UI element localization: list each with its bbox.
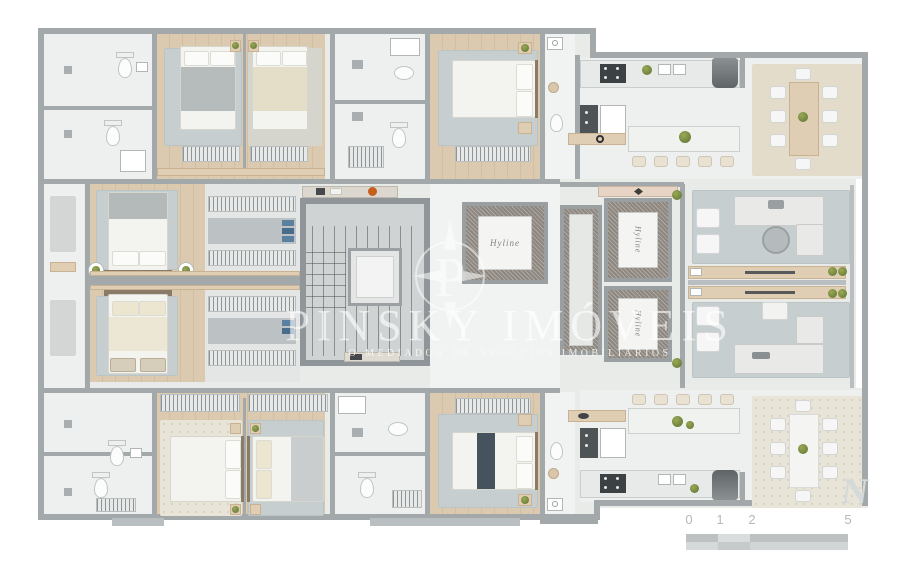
- dining-chair: [795, 158, 811, 170]
- toilet: [388, 422, 408, 436]
- wall-v1-bottom: [152, 392, 157, 514]
- laundry-basin: [548, 82, 559, 93]
- toilet: [550, 114, 563, 132]
- plant: [679, 131, 691, 143]
- planter: [838, 267, 847, 276]
- elevator-cab: Hyline: [618, 212, 658, 268]
- decor-item: [578, 413, 589, 419]
- floorplan-render: Hyline Hyline Hyline: [0, 0, 900, 576]
- bar-stool: [632, 156, 646, 167]
- nightstand: [250, 504, 261, 515]
- shower-tray: [338, 396, 366, 414]
- scale-segment: [686, 542, 718, 550]
- planter: [828, 289, 837, 298]
- floor-drain: [64, 420, 72, 428]
- deck-slot: [745, 271, 795, 274]
- toilet-tank: [92, 472, 110, 478]
- toilet-tank: [108, 440, 126, 446]
- dining-chair: [822, 466, 838, 479]
- refrigerator: [600, 428, 626, 458]
- headboard: [535, 432, 538, 490]
- bar-stool: [676, 394, 690, 405]
- sink-basin: [658, 64, 671, 75]
- deck-divider: [688, 280, 846, 285]
- oven-tower: [580, 428, 598, 458]
- closet-rail: [248, 394, 328, 412]
- armchair: [696, 332, 720, 352]
- wall-v3-top: [425, 32, 430, 179]
- sofa: [734, 344, 824, 374]
- washer-drum: [552, 40, 558, 46]
- wall-living-right: [850, 185, 854, 388]
- stub-balcony-2: [370, 518, 520, 526]
- closet-rail: [160, 394, 240, 412]
- dining-chair: [822, 442, 838, 455]
- nightstand: [518, 414, 532, 426]
- plant: [252, 425, 259, 432]
- dining-chair: [795, 68, 811, 80]
- toilet: [360, 478, 374, 498]
- dining-chair: [770, 86, 786, 99]
- plant: [521, 496, 529, 504]
- elevator-script-label: Hyline: [490, 238, 520, 248]
- elevator-script-label: Hyline: [634, 310, 643, 337]
- wall-bottom-band: [44, 388, 560, 393]
- cooktop: [600, 474, 626, 493]
- sink-basin: [673, 64, 686, 75]
- bath-inner-wall-tm: [335, 100, 425, 104]
- bench-radiator: [455, 398, 531, 414]
- coffee-table: [762, 226, 790, 254]
- bar-stool: [654, 394, 668, 405]
- sink: [352, 428, 363, 437]
- floor-drain: [64, 488, 72, 496]
- ottoman: [140, 358, 166, 372]
- dining-chair: [770, 418, 786, 431]
- plant: [690, 484, 699, 493]
- top-right-setback: [590, 24, 870, 52]
- toilet: [392, 128, 406, 148]
- bar-stool: [698, 156, 712, 167]
- wall-top-band: [44, 179, 560, 184]
- dining-chair: [770, 134, 786, 147]
- wall-v1-top: [152, 32, 157, 179]
- elevator-script-label: Hyline: [634, 226, 643, 253]
- toilet-tank: [116, 52, 134, 58]
- range-hood: [712, 58, 738, 88]
- folded-clothes: [282, 328, 294, 334]
- bathtub: [348, 146, 384, 168]
- double-bed: [108, 192, 168, 272]
- nightstand: [518, 122, 532, 134]
- bath-inner-wall-bm: [335, 452, 425, 456]
- nightstand: [230, 423, 241, 434]
- dining-chair: [822, 110, 838, 123]
- scale-segment: [718, 542, 750, 550]
- dining-chair: [795, 490, 811, 502]
- bench-radiator: [182, 146, 240, 162]
- washer-drum: [552, 501, 558, 507]
- planter: [828, 267, 837, 276]
- wall-v3-bottom: [425, 392, 430, 514]
- balcony-sill: [157, 168, 325, 176]
- bench-radiator: [455, 146, 531, 162]
- decor-orange-bowl: [368, 187, 377, 196]
- bar-stool: [676, 156, 690, 167]
- laundry-basin: [548, 468, 559, 479]
- scale-segment: [750, 534, 848, 542]
- armchair: [696, 306, 720, 326]
- scale-tick: 2: [748, 512, 755, 527]
- closet-rail: [208, 250, 296, 266]
- decor-box: [316, 188, 325, 195]
- sink: [136, 62, 148, 72]
- double-bed: [252, 436, 324, 502]
- dining-chair: [822, 134, 838, 147]
- scale-tick: 5: [844, 512, 851, 527]
- stub-service-bottom: [540, 514, 598, 524]
- sink-basin: [658, 474, 671, 485]
- plant: [686, 421, 694, 429]
- dining-chair: [770, 442, 786, 455]
- scale-segment: [718, 534, 750, 542]
- bathtub: [96, 498, 136, 512]
- dining-chair: [770, 466, 786, 479]
- folded-clothes: [282, 220, 294, 226]
- plant: [672, 416, 683, 427]
- deck-box: [690, 288, 702, 296]
- shower-tray: [120, 150, 146, 172]
- floor-drain: [64, 66, 72, 74]
- suite-divider-wall: [90, 276, 300, 285]
- sink: [130, 448, 142, 458]
- headboard: [535, 60, 538, 118]
- bench-radiator: [250, 146, 308, 162]
- armchair: [696, 208, 720, 228]
- plant: [642, 65, 652, 75]
- bar-stool: [698, 394, 712, 405]
- pillar-kitchen-top: [740, 55, 745, 88]
- hall-runner-inner: [569, 214, 593, 346]
- toilet: [106, 126, 120, 146]
- outer-wall-left: [38, 28, 44, 520]
- closet-rail: [208, 196, 296, 212]
- toilet-tank: [390, 122, 408, 128]
- deck-slot: [745, 291, 795, 294]
- elevator-cab: Hyline: [618, 298, 658, 350]
- folded-clothes: [282, 236, 294, 242]
- scale-tick: 0: [685, 512, 692, 527]
- closet-rail: [208, 296, 296, 312]
- plant: [232, 42, 239, 49]
- double-bed: [170, 436, 242, 502]
- shower-tray: [390, 38, 420, 56]
- service-strip-top: [545, 34, 575, 179]
- folded-clothes: [282, 228, 294, 234]
- toilet: [394, 66, 414, 80]
- bathtub: [392, 490, 422, 508]
- decor-box: [350, 354, 362, 360]
- ottoman: [762, 302, 788, 320]
- scale-bar: 0 1 2 5: [686, 512, 856, 558]
- outer-wall-top-left: [38, 28, 594, 34]
- scale-segment: [750, 542, 848, 550]
- plant: [232, 506, 239, 513]
- stub-balcony-1: [112, 518, 164, 526]
- terrace-bench: [50, 262, 76, 272]
- stairs: [306, 252, 346, 308]
- sofa-throw: [768, 200, 784, 209]
- double-bed: [180, 46, 236, 130]
- scale-tick: 1: [716, 512, 723, 527]
- double-bed: [452, 60, 536, 118]
- sink: [352, 60, 363, 69]
- pan: [596, 135, 604, 143]
- bar-stool: [654, 156, 668, 167]
- headboard: [241, 436, 244, 502]
- plant: [521, 44, 529, 52]
- range-hood: [712, 470, 738, 500]
- plant: [798, 112, 808, 122]
- wall-v4-top: [540, 32, 545, 179]
- plant: [250, 42, 257, 49]
- bar-stool: [720, 394, 734, 405]
- cooktop: [600, 64, 626, 83]
- ottoman: [110, 358, 136, 372]
- planter: [838, 289, 847, 298]
- terrace-rug: [50, 196, 76, 252]
- stair-landing-inner: [356, 256, 394, 298]
- wall-v4-bottom: [540, 392, 545, 514]
- outer-wall-right: [862, 52, 868, 506]
- sofa-throw: [752, 352, 770, 359]
- chaise: [796, 316, 824, 344]
- toilet: [94, 478, 108, 498]
- planter: [672, 190, 682, 200]
- bar-stool: [632, 394, 646, 405]
- island-shelf: [568, 410, 626, 422]
- wall-bed-divider-top: [243, 34, 246, 174]
- double-bed: [452, 432, 536, 490]
- toilet: [550, 442, 563, 460]
- wall-v2-top: [330, 32, 335, 179]
- wall-living-left: [680, 184, 685, 388]
- pillar-kitchen-bottom: [740, 472, 745, 505]
- dining-chair: [822, 86, 838, 99]
- toilet: [110, 446, 124, 466]
- deck-box: [690, 268, 702, 276]
- planter: [672, 358, 682, 368]
- dining-chair: [822, 418, 838, 431]
- outer-wall-top-jog: [590, 28, 596, 58]
- toilet: [118, 58, 132, 78]
- sink: [352, 112, 363, 121]
- armchair: [696, 234, 720, 254]
- plant: [798, 444, 808, 454]
- bath-inner-wall-tl: [44, 106, 152, 110]
- closet-rail: [208, 350, 296, 366]
- kitchen-island: [628, 408, 740, 434]
- floor-drain: [64, 130, 72, 138]
- toilet-tank: [358, 472, 376, 478]
- chaise: [796, 224, 824, 256]
- elevator-cab: Hyline: [478, 216, 532, 270]
- dining-chair: [770, 110, 786, 123]
- sink-basin: [673, 474, 686, 485]
- dining-chair: [795, 400, 811, 412]
- headboard: [247, 436, 250, 502]
- bar-stool: [720, 156, 734, 167]
- terrace-rug: [50, 300, 76, 356]
- decor-box: [330, 188, 342, 195]
- folded-clothes: [282, 320, 294, 326]
- scale-segment: [686, 534, 718, 542]
- double-bed: [252, 46, 308, 130]
- toilet-tank: [104, 120, 122, 126]
